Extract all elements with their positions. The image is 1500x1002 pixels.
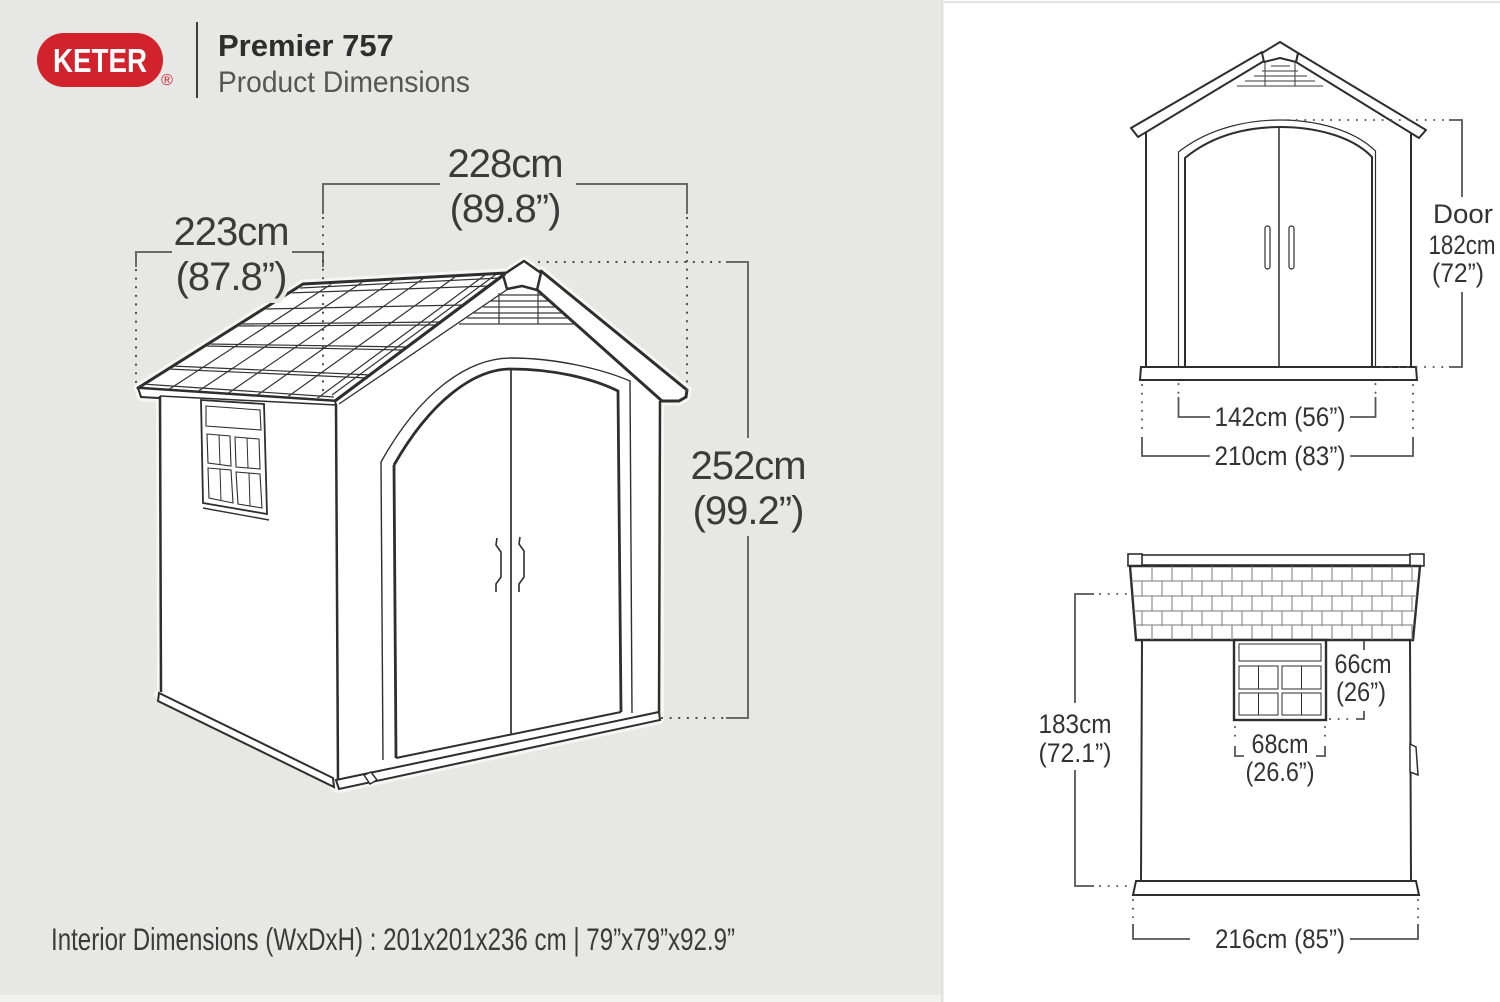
svg-text:66cm: 66cm (1335, 649, 1392, 679)
svg-text:(26”): (26”) (1336, 677, 1386, 707)
svg-text:228cm: 228cm (447, 142, 562, 186)
svg-text:183cm: 183cm (1039, 709, 1112, 739)
svg-text:Interior Dimensions (WxDxH) :: Interior Dimensions (WxDxH) : 201x201x23… (51, 921, 735, 957)
svg-text:(89.8”): (89.8”) (450, 187, 561, 231)
svg-text:216cm (85”): 216cm (85”) (1215, 924, 1345, 954)
svg-text:182cm: 182cm (1429, 230, 1496, 260)
svg-text:(26.6”): (26.6”) (1246, 757, 1315, 787)
svg-text:68cm: 68cm (1252, 729, 1309, 759)
svg-text:KETER: KETER (53, 42, 147, 79)
svg-text:Product Dimensions: Product Dimensions (218, 66, 470, 99)
svg-text:(72”): (72”) (1432, 258, 1484, 288)
svg-text:Door: Door (1433, 199, 1493, 229)
svg-text:210cm (83”): 210cm (83”) (1215, 441, 1346, 471)
svg-text:(99.2”): (99.2”) (693, 489, 804, 533)
svg-text:223cm: 223cm (173, 210, 288, 254)
svg-text:®: ® (161, 72, 173, 89)
svg-text:Premier 757: Premier 757 (218, 28, 394, 63)
svg-text:(87.8”): (87.8”) (176, 255, 287, 299)
svg-text:(72.1”): (72.1”) (1039, 738, 1112, 768)
svg-text:142cm (56”): 142cm (56”) (1215, 402, 1346, 432)
svg-text:252cm: 252cm (690, 444, 805, 488)
